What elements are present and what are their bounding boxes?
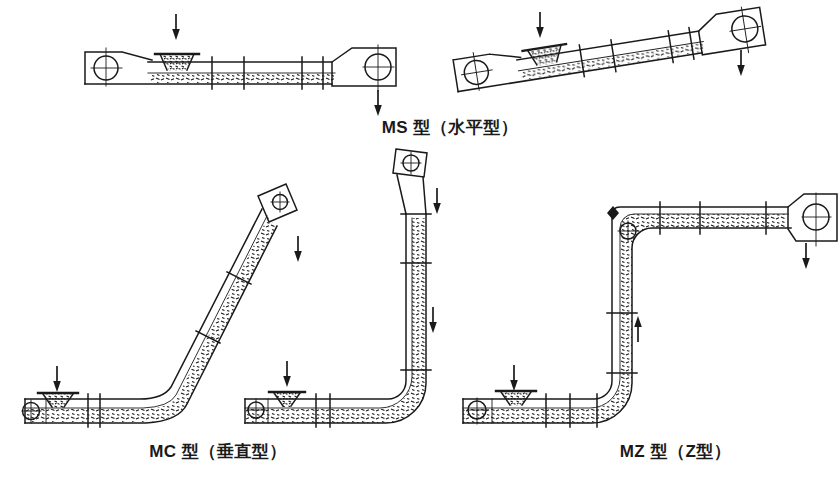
caption-mc-type: MC 型（垂直型） xyxy=(98,440,338,463)
discharge-arrow-icon xyxy=(433,188,441,214)
mz-z-conveyor-drawing xyxy=(463,193,837,427)
feed-arrow-icon xyxy=(510,365,518,391)
discharge-arrow-icon xyxy=(374,90,382,116)
discharge-arrow-icon xyxy=(737,50,745,76)
feed-arrow-icon xyxy=(536,12,544,38)
conveyor-diagrams-canvas xyxy=(0,0,840,477)
ms-horizontal-conveyor-drawing xyxy=(85,14,396,116)
head-housing xyxy=(258,184,297,222)
caption-mz-type: MZ 型（Z型） xyxy=(558,440,793,463)
caption-ms-type: MS 型（水平型） xyxy=(330,116,570,139)
discharge-arrow-icon xyxy=(294,236,302,262)
upward-flow-arrow-icon xyxy=(634,316,642,342)
feed-arrow-icon xyxy=(172,14,180,40)
material-stipple xyxy=(25,217,276,422)
discharge-arrow-icon xyxy=(802,243,810,269)
feed-arrow-icon xyxy=(283,361,291,387)
feed-hopper xyxy=(38,393,78,408)
return-flow-arrow-icon xyxy=(429,307,437,333)
ms-inclined-conveyor-drawing xyxy=(452,4,766,98)
feed-arrow-icon xyxy=(53,366,61,392)
corner-bolt-diamond xyxy=(607,206,619,220)
mc-inclined-conveyor-drawing xyxy=(22,184,302,427)
mc-vertical-conveyor-drawing xyxy=(245,149,441,427)
conveyor-type-figure: MS 型（水平型） MC 型（垂直型） MZ 型（Z型） xyxy=(0,0,840,477)
